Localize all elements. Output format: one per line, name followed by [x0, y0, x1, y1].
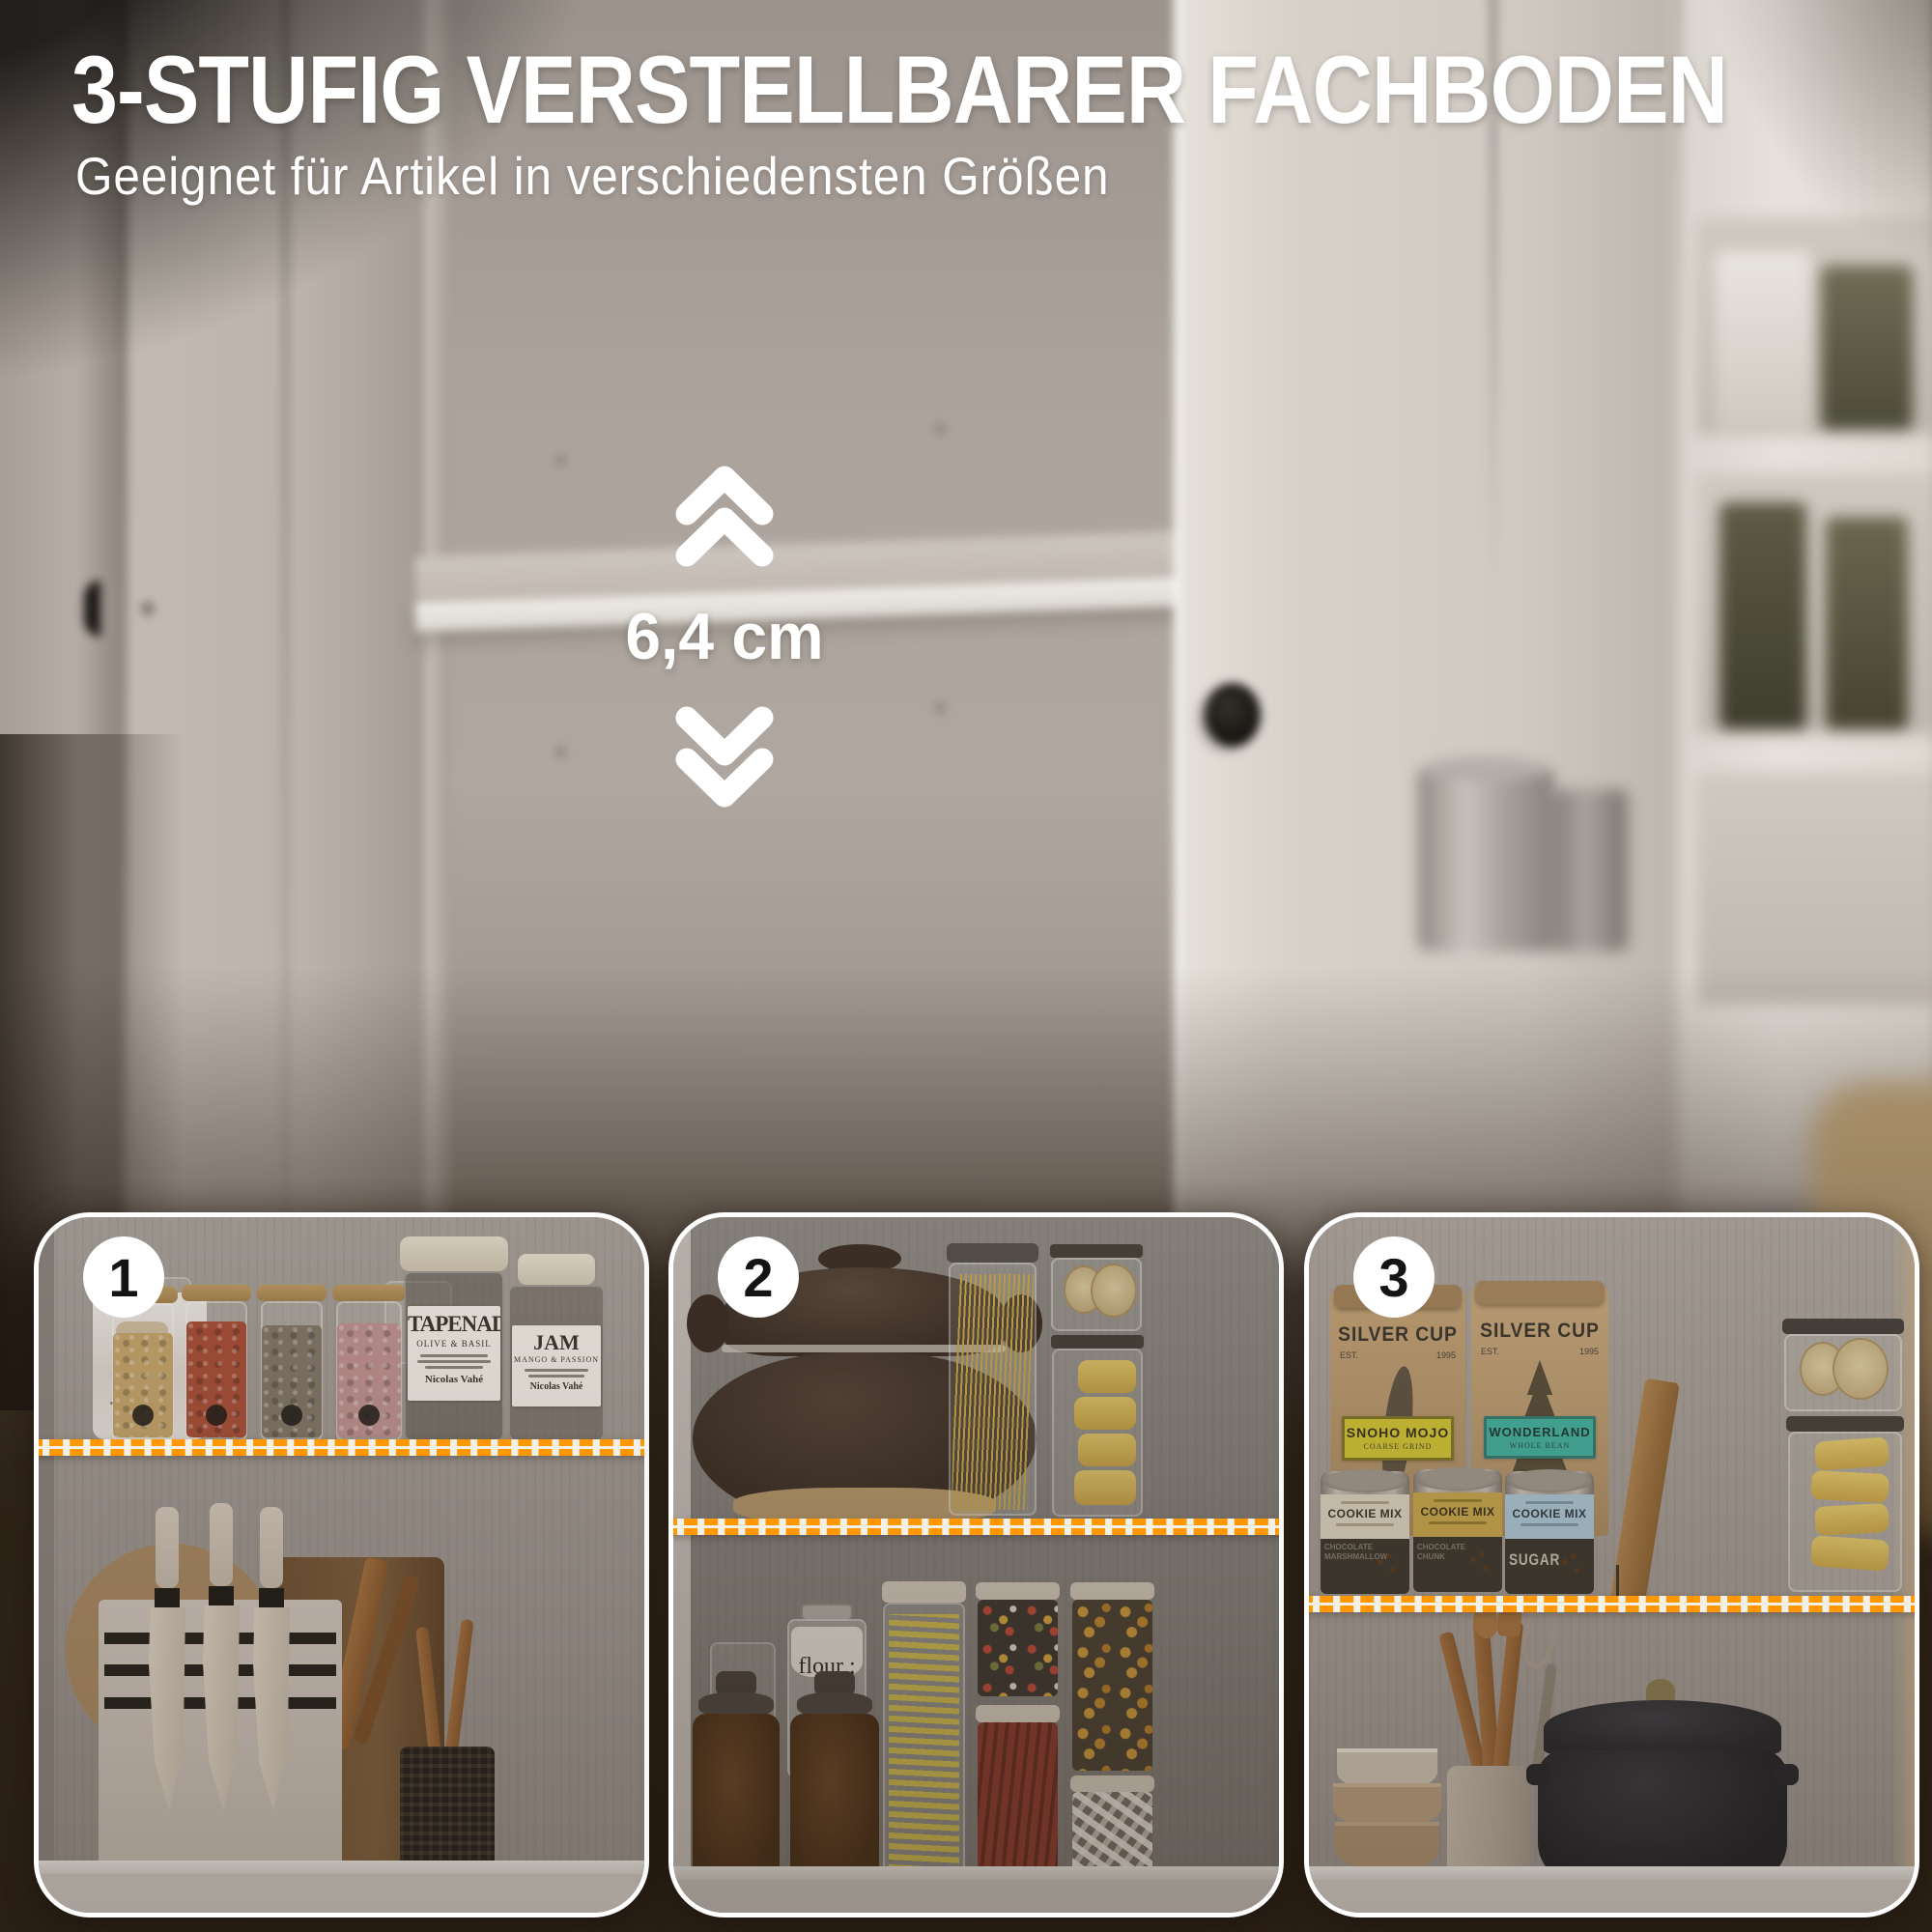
panel-number: 1 — [108, 1246, 138, 1309]
product-marketing-image: 3-STUFIG VERSTELLBARER FACHBODEN Geeigne… — [0, 0, 1932, 1932]
config-panel-3: SILVER CUP EST. 1995 SNOHO MOJO COARSE G… — [1304, 1212, 1919, 1918]
panel-number: 2 — [743, 1246, 773, 1309]
photo-tint — [673, 1217, 1279, 1913]
shelf-spacing-value: 6,4 cm — [565, 599, 884, 674]
photo-tint — [39, 1217, 644, 1913]
double-chevron-down-icon — [669, 701, 780, 821]
panel-number: 3 — [1378, 1246, 1408, 1309]
panel-number-badge: 2 — [718, 1236, 799, 1318]
double-chevron-up-icon — [669, 452, 780, 572]
page-title: 3-STUFIG VERSTELLBARER FACHBODEN — [71, 35, 1727, 145]
highlighted-shelf — [34, 1439, 649, 1456]
highlighted-shelf — [668, 1519, 1284, 1535]
config-panel-2: flour ; — [668, 1212, 1284, 1918]
config-panel-1: TAPENADE OLIVE & BASIL Nicolas Vahé JAM … — [34, 1212, 649, 1918]
photo-tint — [1309, 1217, 1915, 1913]
panel-number-badge: 1 — [83, 1236, 164, 1318]
panel-2-photo: flour ; — [673, 1217, 1279, 1913]
panel-1-photo: TAPENADE OLIVE & BASIL Nicolas Vahé JAM … — [39, 1217, 644, 1913]
panel-number-badge: 3 — [1353, 1236, 1435, 1318]
panel-3-photo: SILVER CUP EST. 1995 SNOHO MOJO COARSE G… — [1309, 1217, 1915, 1913]
page-subtitle: Geeignet für Artikel in verschiedensten … — [75, 145, 1109, 207]
highlighted-shelf — [1304, 1596, 1919, 1612]
